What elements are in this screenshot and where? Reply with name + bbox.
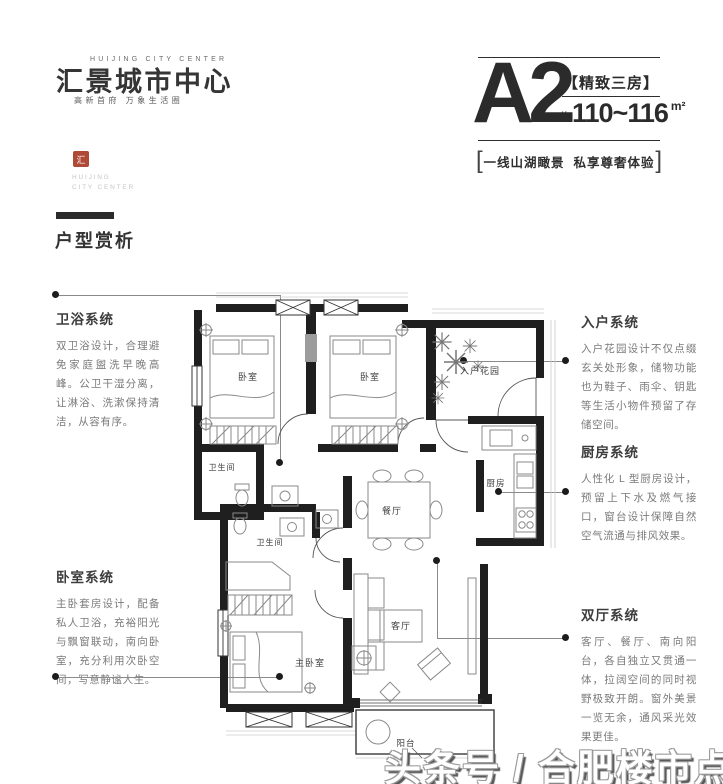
annotation-body: 主卧套房设计，配备私人卫浴，充裕阳光与飘窗联动，南向卧室，充分利用次卧空间，写意… [56,595,160,690]
unit-divider [562,96,660,97]
doors [278,378,536,618]
callout-dot [52,291,59,298]
unit-area-approx: 约 [560,108,570,123]
room-labels: 卧室 卧室 入户花园 卫生间 餐厅 厨房 卫生间 客厅 主卧室 阳台 [209,365,506,748]
brand-seal-caption: HUIJING CITY CENTER [72,173,135,193]
unit-area-unit: m² [671,99,686,113]
floor-plan: 卧室 卧室 入户花园 卫生间 餐厅 厨房 卫生间 客厅 主卧室 阳台 [180,280,580,760]
brand-logo-subtitle: 高新首府 万象生活圈 [74,95,183,106]
brand-seal-text: 汇 [76,153,85,166]
watermark: 头条号 / 合肥楼市点评 [384,738,723,784]
room-label-kitchen: 厨房 [486,478,505,488]
callout-dot [52,673,59,680]
room-label-bath1: 卫生间 [209,462,236,472]
unit-area-value: 110~116 [572,100,668,127]
annotation-body: 入户花园设计不仅点缀玄关处形象，储物功能也为鞋子、雨伞、钥匙等生活小物件预留了存… [581,340,697,435]
slogan-bracket-left: [ [476,149,483,173]
room-label-living: 客厅 [391,620,411,631]
unit-rule-bottom [478,140,660,141]
unit-area: 约 110~116 m² [560,99,686,127]
annotation-bedroom-system: 卧室系统 主卧套房设计，配备私人卫浴，充裕阳光与飘窗联动，南向卧室，充分利用次卧… [56,566,160,690]
slogan-text: 一线山湖瞰景 私享尊奢体验 [484,152,655,171]
annotation-body: 人性化 L 型厨房设计，预留上下水及燃气接口，窗台设计保障自然空气流通与排风效果… [581,470,697,546]
room-label-entry-garden: 入户花园 [460,365,500,376]
shaft [305,334,317,362]
offset-lines [216,293,555,758]
annotation-title: 入户系统 [581,311,697,331]
annotation-title: 厨房系统 [581,441,697,461]
annotation-kitchen-system: 厨房系统 人性化 L 型厨房设计，预留上下水及燃气接口，窗台设计保障自然空气流通… [581,441,697,546]
floorplan-poster: HUIJING CITY CENTER 汇景城市中心 高新首府 万象生活圈 汇 … [0,0,723,784]
annotation-body: 客厅、餐厅、南向阳台，各自独立又贯通一体，拉阔空间的同时视野极致开朗。窗外美景一… [581,633,697,747]
room-label-dining: 餐厅 [382,505,402,516]
unit-slogan: [ 一线山湖瞰景 私享尊奢体验 ] [476,148,662,174]
section-title-bar [56,212,114,219]
unit-tag: 【精致三房】 [563,72,659,93]
annotation-title: 卧室系统 [56,566,160,586]
slogan-bracket-right: ] [655,149,662,173]
unit-name: A2 [472,50,570,136]
section-title: 户型赏析 [55,227,135,253]
room-label-bedroom2: 卧室 [360,371,380,382]
annotation-title: 卫浴系统 [56,308,160,328]
annotation-bath-system: 卫浴系统 双卫浴设计，合理避免家庭盥洗早晚高峰。公卫干湿分离，让淋浴、洗漱保持清… [56,308,160,432]
room-label-bath2: 卫生间 [257,537,284,547]
annotation-hall-system: 双厅系统 客厅、餐厅、南向阳台，各自独立又贯通一体，拉阔空间的同时视野极致开朗。… [581,604,697,747]
annotation-body: 双卫浴设计，合理避免家庭盥洗早晚高峰。公卫干湿分离，让淋浴、洗漱保持清洁，从容有… [56,337,160,432]
room-label-bedroom1: 卧室 [238,371,258,382]
brand-seal-icon: 汇 [73,151,89,167]
brand-logo-cn: 汇景城市中心 [56,60,233,99]
sliding-door [360,700,482,706]
annotation-entry-system: 入户系统 入户花园设计不仅点缀玄关处形象，储物功能也为鞋子、雨伞、钥匙等生活小物… [581,311,697,435]
room-label-master: 主卧室 [295,657,325,668]
annotation-title: 双厅系统 [581,604,697,624]
